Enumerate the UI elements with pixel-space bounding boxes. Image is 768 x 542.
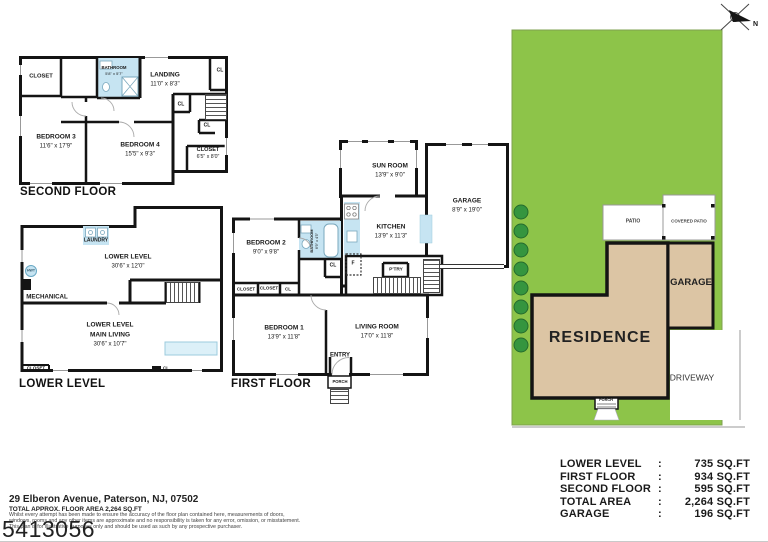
kitchen-sink-icon	[347, 231, 357, 242]
row-sep: :	[658, 458, 672, 471]
row-value: 934 SQ.FT	[672, 471, 750, 484]
garage-site-label: GARAGE	[670, 276, 712, 290]
porch-site-label: PORCH	[599, 398, 613, 404]
room-dims: 17'0" x 11'8"	[355, 332, 399, 341]
room-name: LOWER LEVEL	[105, 253, 152, 263]
toilet-icon	[103, 83, 110, 92]
site-plan	[505, 25, 757, 435]
floor-plan-sheet: CLOSET BATHROOM 5'8" x 5'7" LANDING 11'0…	[0, 0, 768, 542]
row-sep: :	[658, 496, 672, 509]
room-sun-room: SUN ROOM 13'9" x 9'0"	[372, 162, 408, 181]
room-name: CLOSET	[260, 286, 278, 293]
first-floor-stairs-upper	[423, 259, 440, 293]
row-label: LOWER LEVEL	[560, 458, 658, 471]
area-name: DRIVEWAY	[670, 372, 714, 385]
room-landing: LANDING 11'0" x 8'3"	[150, 71, 180, 90]
room-name: CLOSET	[237, 287, 255, 294]
row-sep: :	[658, 508, 672, 521]
window-seat	[165, 342, 217, 355]
room-name: CLOSET	[29, 73, 53, 82]
room-dims: 8'9" x 19'0"	[452, 206, 482, 215]
room-dims: 11'6" x 17'9"	[36, 142, 75, 151]
closet-cl-row: CL	[285, 287, 291, 294]
closet-cl-tr: CL	[217, 67, 224, 75]
room-bedroom2: BEDROOM 2 9'0" x 9'8"	[246, 239, 285, 258]
lower-level-title: LOWER LEVEL	[19, 378, 105, 390]
room-closet-1: CLOSET	[237, 287, 255, 294]
room-bedroom4: BEDROOM 4 15'5" x 9'3"	[120, 141, 159, 160]
room-name: BEDROOM 3	[36, 133, 75, 143]
room-dims: 5'8" x 5'7"	[102, 71, 127, 77]
room-dims: 13'9" x 11'8"	[264, 333, 303, 342]
table-row: GARAGE : 196 SQ.FT	[560, 508, 750, 521]
compass-icon: N	[719, 2, 765, 36]
room-laundry: LAUNDRY	[84, 237, 108, 245]
row-label: SECOND FLOOR	[560, 483, 658, 496]
area-name: PORCH	[599, 398, 613, 404]
room-name: PORCH	[332, 379, 347, 385]
room-name: CLOSET	[27, 366, 45, 373]
covered-patio-label: COVERED PATIO	[671, 219, 707, 226]
row-label: GARAGE	[560, 508, 658, 521]
room-entry: ENTRY	[330, 352, 350, 361]
room-name: HWT	[27, 268, 35, 273]
area-name: PATIO	[626, 218, 641, 226]
first-floor-stairs-lower	[373, 277, 421, 294]
patio-label: PATIO	[626, 218, 641, 226]
residence-label: RESIDENCE	[549, 326, 651, 350]
room-name: CL	[204, 122, 211, 130]
row-value: 595 SQ.FT	[672, 483, 750, 496]
room-dims: 30'6" x 10'7"	[87, 340, 134, 349]
table-row: SECOND FLOOR : 595 SQ.FT	[560, 483, 750, 496]
room-kitchen: KITCHEN 13'9" x 11'3"	[375, 223, 408, 242]
stove-icon	[345, 204, 359, 219]
second-floor-stairs	[205, 94, 227, 120]
room-dims: 13'9" x 9'0"	[372, 171, 408, 180]
room-name: CL	[217, 67, 224, 75]
room-garage-fp: GARAGE 8'9" x 19'0"	[452, 197, 482, 216]
room-living-room: LIVING ROOM 17'0" x 11'8"	[355, 323, 399, 342]
area-name: RESIDENCE	[549, 326, 651, 350]
room-name: BEDROOM 2	[246, 239, 285, 249]
room-name: CLOSET	[197, 146, 220, 154]
kitchen-garage-counter	[420, 215, 432, 243]
room-dims: 9'0" x 9'8"	[246, 248, 285, 257]
lower-level-stairs	[166, 282, 199, 303]
fridge-label: F	[351, 260, 354, 268]
room-name: SUN ROOM	[372, 162, 408, 172]
room-dims: 30'6" x 12'0"	[105, 262, 152, 271]
room-dims: 11'0" x 8'3"	[150, 80, 180, 89]
room-name: CL	[285, 287, 291, 294]
table-row: TOTAL AREA : 2,264 SQ.FT	[560, 496, 750, 509]
room-name: CL	[330, 262, 337, 270]
room-name: F	[351, 260, 354, 268]
room-bedroom1: BEDROOM 1 13'9" x 11'8"	[264, 324, 303, 343]
room-dims: 15'5" x 9'3"	[120, 150, 159, 159]
room-bathroom-sf: BATHROOM 5'8" x 5'7"	[102, 65, 127, 77]
area-name: GARAGE	[670, 276, 712, 290]
tub-icon	[324, 224, 338, 257]
room-name: GARAGE	[452, 197, 482, 207]
room-dims: 13'9" x 11'3"	[375, 232, 408, 241]
row-value: 196 SQ.FT	[672, 508, 750, 521]
room-dims: 6'5" x 8'0"	[197, 154, 220, 162]
dryer-icon	[98, 228, 108, 237]
covered-patio-area	[663, 195, 715, 240]
room-main-living: LOWER LEVEL MAIN LIVING 30'6" x 10'7"	[87, 321, 134, 350]
room-name: LANDING	[150, 71, 180, 81]
room-name: LAUNDRY	[84, 237, 108, 245]
room-dims: 6'9" x 4'5"	[315, 229, 321, 252]
row-value: 735 SQ.FT	[672, 458, 750, 471]
hwt-label: HWT	[27, 268, 35, 273]
second-floor-title: SECOND FLOOR	[20, 186, 116, 198]
room-lower-level: LOWER LEVEL 30'6" x 12'0"	[105, 253, 152, 272]
room-closet-bl: CLOSET	[27, 366, 45, 373]
area-table: LOWER LEVEL : 735 SQ.FT FIRST FLOOR : 93…	[560, 458, 750, 521]
room-closet-tl: CLOSET	[29, 73, 53, 82]
room-porch-ff: PORCH	[332, 379, 347, 385]
room-name: CL	[163, 366, 169, 373]
walkway	[594, 409, 619, 420]
row-label: FIRST FLOOR	[560, 471, 658, 484]
room-bathroom-ff: BATHROOM 6'9" x 4'5"	[309, 229, 321, 252]
wall-block	[152, 366, 161, 371]
listing-id: 5413056	[2, 516, 95, 542]
row-label: TOTAL AREA	[560, 496, 658, 509]
room-name: MAIN LIVING	[87, 330, 134, 340]
property-address: 29 Elberon Avenue, Paterson, NJ, 07502	[9, 494, 198, 505]
room-name: BEDROOM 4	[120, 141, 159, 151]
room-name: LOWER LEVEL	[87, 321, 134, 331]
area-name: COVERED PATIO	[671, 219, 707, 226]
washer-icon	[86, 228, 96, 237]
row-value: 2,264 SQ.FT	[672, 496, 750, 509]
table-row: FIRST FLOOR : 934 SQ.FT	[560, 471, 750, 484]
closet-cl-kitchen: CL	[330, 262, 337, 270]
chimney-block	[22, 279, 31, 290]
porch-steps-ff	[330, 389, 349, 404]
driveway-label: DRIVEWAY	[670, 372, 714, 385]
room-closet-br: CLOSET 6'5" x 8'0"	[197, 146, 220, 162]
first-floor-title: FIRST FLOOR	[231, 378, 311, 390]
room-name: KITCHEN	[375, 223, 408, 233]
room-name: BEDROOM 1	[264, 324, 303, 334]
room-pantry: P'TRY	[389, 266, 403, 273]
room-name: LIVING ROOM	[355, 323, 399, 333]
room-name: MECHANICAL	[26, 292, 68, 301]
room-mechanical: MECHANICAL	[26, 292, 68, 301]
compass-n: N	[753, 21, 758, 28]
room-name: CL	[178, 101, 185, 109]
room-name: P'TRY	[389, 266, 403, 273]
closet-cl-low: CL	[204, 122, 211, 130]
row-sep: :	[658, 471, 672, 484]
room-closet-2: CLOSET	[260, 286, 278, 293]
closet-cl-mid: CL	[178, 101, 185, 109]
table-row: LOWER LEVEL : 735 SQ.FT	[560, 458, 750, 471]
room-bedroom3: BEDROOM 3 11'6" x 17'9"	[36, 133, 75, 152]
row-sep: :	[658, 483, 672, 496]
room-name: ENTRY	[330, 352, 350, 361]
closet-cl-b: CL	[163, 366, 169, 373]
